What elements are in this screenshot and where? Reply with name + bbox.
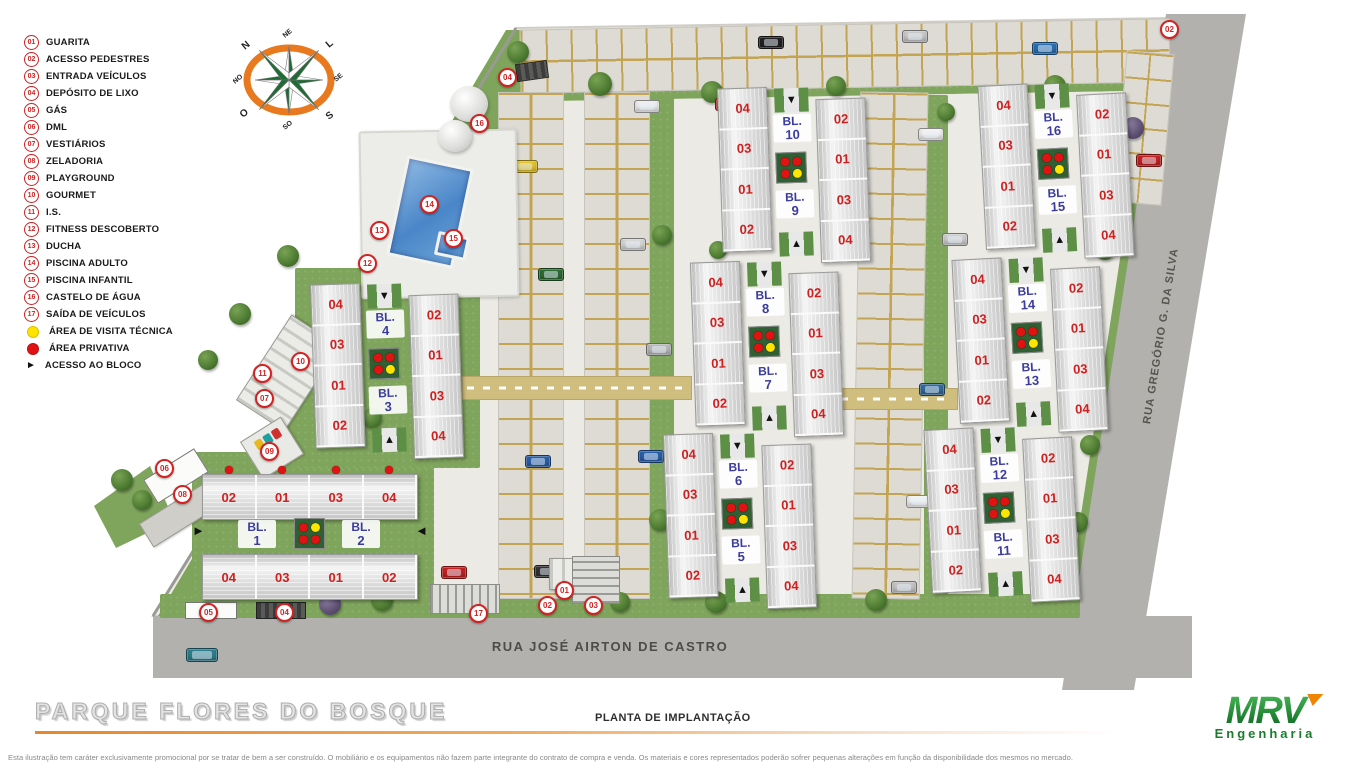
dot-yellow-icon: [739, 515, 748, 524]
legend-item: 13DUCHA: [24, 238, 173, 255]
map-marker: 16: [470, 114, 489, 133]
unit-number: 03: [927, 469, 977, 512]
dot-red-icon: [332, 466, 340, 474]
block-number: 14: [1009, 297, 1048, 313]
project-title: PARQUE FLORES DO BOSQUE: [35, 698, 447, 725]
compass-l: L: [324, 38, 336, 50]
unit-number: 04: [952, 258, 1002, 301]
unit-number: 03: [981, 125, 1031, 168]
block-number: 15: [1039, 199, 1078, 215]
legend-label: ACESSO PEDESTRES: [46, 54, 150, 65]
dot-red-icon: [278, 466, 286, 474]
block-number: 9: [776, 203, 814, 218]
unit-number: 02: [409, 295, 458, 337]
unit-number: 02: [203, 475, 257, 519]
legend: 01GUARITA02ACESSO PEDESTRES03ENTRADA VEÍ…: [24, 34, 173, 374]
unit-number: 03: [792, 353, 841, 395]
block-number: 8: [746, 301, 784, 316]
unit-number: 03: [719, 128, 768, 170]
legend-item: 14PISCINA ADULTO: [24, 255, 173, 272]
dot-red-icon: [27, 343, 39, 355]
unit-number: 04: [311, 284, 360, 326]
mrv-logo: MRV Engenharia: [1190, 694, 1340, 741]
block-pair: 0403010202010304▼BL.10BL.9▲: [717, 83, 873, 266]
block-pair: 0403010202010304▼BL.4BL.3▲: [310, 279, 466, 462]
legend-item: ÁREA DE VISITA TÉCNICA: [24, 323, 173, 340]
dot-red-icon: [780, 157, 789, 166]
block-number: 13: [1013, 373, 1052, 389]
building: 04030102: [202, 554, 418, 600]
access-triangle-icon: ►: [192, 524, 205, 537]
legend-number-badge: 16: [24, 290, 39, 305]
legend-item: 11I.S.: [24, 204, 173, 221]
dot-red-icon: [299, 535, 308, 544]
dot-red-icon: [1000, 497, 1009, 506]
legend-item: 08ZELADORIA: [24, 153, 173, 170]
block-access: ▲: [779, 231, 814, 256]
block-number: 16: [1035, 123, 1074, 139]
unit-number: 02: [1023, 437, 1073, 480]
legend-label: DEPÓSITO DE LIXO: [46, 88, 139, 99]
block-number: 5: [722, 549, 760, 564]
access-triangle-icon: ▼: [759, 268, 770, 279]
dot-red-icon: [989, 509, 998, 518]
street-label-bottom: RUA JOSÉ AIRTON DE CASTRO: [390, 639, 830, 654]
unit-number: 03: [955, 299, 1005, 342]
block-number: 12: [981, 467, 1020, 483]
access-triangle-icon: ►: [26, 361, 36, 371]
block-label: BL.5: [722, 535, 761, 565]
legend-number-badge: 13: [24, 239, 39, 254]
dot-yellow-icon: [766, 343, 775, 352]
compass-so: SO: [282, 119, 295, 131]
area-dots: [748, 326, 780, 358]
legend-item: 05GÁS: [24, 102, 173, 119]
building: 04030102: [977, 83, 1036, 249]
legend-label: PISCINA ADULTO: [46, 258, 128, 269]
block-label: BL.3: [369, 385, 408, 415]
dot-red-icon: [299, 523, 308, 532]
access-triangle-icon: ▼: [379, 290, 390, 301]
dot-red-icon: [225, 466, 233, 474]
compass-s: S: [324, 109, 336, 122]
dot-yellow-icon: [1055, 165, 1064, 174]
block-number: 6: [719, 473, 757, 488]
block-label: BL.13: [1012, 359, 1051, 389]
building: 02010304: [761, 443, 817, 609]
access-triangle-icon: ▼: [786, 94, 797, 105]
dot-yellow-icon: [27, 326, 39, 338]
legend-item: 07VESTIÁRIOS: [24, 136, 173, 153]
unit-number: 02: [789, 273, 838, 315]
legend-label: GOURMET: [46, 190, 96, 201]
legend-label: PLAYGROUND: [46, 173, 115, 184]
unit-number: 01: [257, 475, 311, 519]
dot-red-icon: [1042, 153, 1051, 162]
unit-number: 01: [310, 555, 364, 599]
legend-number-badge: 08: [24, 154, 39, 169]
area-dots: [1037, 147, 1070, 180]
legend-item: 06DML: [24, 119, 173, 136]
unit-number: 01: [818, 139, 867, 181]
legend-label: FITNESS DESCOBERTO: [46, 224, 159, 235]
access-triangle-icon: ◄: [415, 524, 428, 537]
unit-number: 02: [668, 555, 717, 597]
unit-number: 04: [978, 84, 1028, 127]
legend-label: CASTELO DE ÁGUA: [46, 292, 141, 303]
block-access: ▼: [1034, 83, 1069, 109]
dot-red-icon: [1043, 165, 1052, 174]
legend-item: 16CASTELO DE ÁGUA: [24, 289, 173, 306]
unit-number: 02: [315, 405, 364, 447]
block-label: BL.2: [342, 520, 380, 548]
unit-number: 04: [767, 566, 816, 608]
legend-number-badge: 15: [24, 273, 39, 288]
access-triangle-icon: ▲: [1000, 578, 1011, 590]
unit-number: 01: [667, 515, 716, 557]
compass-n: N: [240, 39, 253, 52]
access-triangle-icon: ▲: [1028, 408, 1039, 420]
legend-item: 03ENTRADA VEÍCULOS: [24, 68, 173, 85]
implantation-plan: 0403010202010304▼BL.4BL.3▲04030102020103…: [0, 0, 1369, 690]
map-marker: 07: [255, 389, 274, 408]
legend-number-badge: 04: [24, 86, 39, 101]
unit-number: 01: [1025, 478, 1075, 521]
area-dots: [775, 152, 807, 184]
unit-number: 02: [364, 555, 418, 599]
legend-number-badge: 06: [24, 120, 39, 135]
area-dots: [368, 348, 400, 380]
area-dots: [294, 518, 325, 549]
site-plan-page: 0403010202010304▼BL.4BL.3▲04030102020103…: [0, 0, 1369, 768]
map-marker: 09: [260, 442, 279, 461]
block-label: BL.4: [366, 309, 405, 339]
block-label: BL.12: [980, 453, 1019, 483]
disclaimer-text: Esta ilustração tem caráter exclusivamen…: [8, 753, 1363, 762]
building: 02010304: [1022, 436, 1081, 602]
unit-number: 03: [312, 324, 361, 366]
unit-number: 01: [694, 343, 743, 385]
unit-number: 01: [314, 365, 363, 407]
block-access: ▼: [747, 261, 782, 286]
legend-number-badge: 01: [24, 35, 39, 50]
map-marker: 14: [420, 195, 439, 214]
access-triangle-icon: ▲: [1054, 234, 1065, 246]
unit-number: 03: [257, 555, 311, 599]
legend-number-badge: 17: [24, 307, 39, 322]
map-marker: 08: [173, 485, 192, 504]
map-marker: 10: [291, 352, 310, 371]
block-number: 7: [749, 377, 787, 392]
unit-number: 04: [718, 88, 767, 130]
building: 04030102: [690, 261, 746, 427]
block-label: BL.6: [719, 459, 758, 489]
unit-number: 03: [819, 179, 868, 221]
map-marker: 02: [1160, 20, 1179, 39]
dot-red-icon: [1054, 153, 1063, 162]
unit-number: 04: [1029, 559, 1079, 602]
dot-red-icon: [754, 343, 763, 352]
unit-number: 02: [985, 206, 1035, 249]
block-label: BL.9: [776, 189, 815, 219]
map-marker: 17: [469, 604, 488, 623]
access-triangle-icon: ▼: [1020, 264, 1031, 276]
block-label: BL.8: [746, 287, 785, 317]
block-pair: 0403010202010304▼BL.14BL.13▲: [951, 252, 1110, 438]
legend-number-badge: 05: [24, 103, 39, 118]
unit-number: 02: [959, 380, 1009, 423]
legend-label: ÁREA PRIVATIVA: [49, 343, 130, 354]
dot-red-icon: [1017, 339, 1026, 348]
compass-se: SE: [333, 72, 345, 84]
legend-item: ►ACESSO AO BLOCO: [24, 357, 173, 374]
unit-number: 02: [931, 550, 981, 593]
dot-red-icon: [726, 503, 735, 512]
unit-number: 02: [722, 209, 771, 251]
access-triangle-icon: ▲: [737, 584, 748, 595]
unit-number: 01: [1053, 308, 1103, 351]
legend-number-badge: 12: [24, 222, 39, 237]
block-label-prefix: BL.: [342, 521, 380, 534]
compass-rose-icon: N NE L SE S SO O NO: [233, 26, 345, 138]
block-label: BL.16: [1034, 109, 1073, 139]
dot-red-icon: [765, 331, 774, 340]
map-marker: 13: [370, 221, 389, 240]
block-number: 11: [985, 543, 1024, 559]
unit-number: 04: [414, 416, 463, 458]
title-underline: [35, 731, 1120, 734]
block-access: ▲: [372, 427, 407, 452]
block-access: ▲: [752, 405, 787, 430]
legend-number-badge: 10: [24, 188, 39, 203]
unit-number: 02: [1051, 267, 1101, 310]
block-access: ▼: [720, 433, 755, 458]
building: 02010304: [788, 271, 844, 437]
legend-item: 01GUARITA: [24, 34, 173, 51]
map-marker: 05: [199, 603, 218, 622]
dot-yellow-icon: [311, 523, 320, 532]
unit-number: 02: [695, 383, 744, 425]
dot-red-icon: [753, 331, 762, 340]
access-triangle-icon: ▲: [764, 412, 775, 423]
legend-item: 17SAÍDA DE VEÍCULOS: [24, 306, 173, 323]
plan-subtitle: PLANTA DE IMPLANTAÇÃO: [595, 712, 751, 724]
block-pair: 0403010202010304▼BL.6BL.5▲: [663, 429, 819, 612]
legend-number-badge: 02: [24, 52, 39, 67]
map-marker: 01: [555, 581, 574, 600]
dot-red-icon: [781, 169, 790, 178]
unit-number: 03: [1055, 348, 1105, 391]
dot-red-icon: [792, 157, 801, 166]
building: 04030102: [717, 87, 773, 253]
map-marker: 02: [538, 596, 557, 615]
block-access: ▼: [980, 427, 1015, 453]
legend-item: 15PISCINA INFANTIL: [24, 272, 173, 289]
unit-number: 04: [203, 555, 257, 599]
unit-number: 03: [412, 375, 461, 417]
unit-number: 04: [664, 434, 713, 476]
unit-number: 04: [821, 220, 870, 262]
block-number: 4: [366, 323, 404, 338]
building: 02010304: [1050, 266, 1109, 432]
building: 02010304: [202, 474, 418, 520]
unit-number: 01: [929, 509, 979, 552]
legend-label: DUCHA: [46, 241, 81, 252]
map-marker: 06: [155, 459, 174, 478]
access-triangle-icon: ▲: [791, 238, 802, 249]
building: 02010304: [1076, 92, 1135, 258]
map-marker: 12: [358, 254, 377, 273]
access-triangle-icon: ▲: [384, 434, 395, 445]
dot-yellow-icon: [1029, 339, 1038, 348]
map-marker: 04: [498, 68, 517, 87]
unit-number: 03: [1027, 518, 1077, 561]
legend-number-badge: 03: [24, 69, 39, 84]
compass-o: O: [238, 107, 251, 121]
building: 04030102: [923, 427, 982, 593]
building: 04030102: [663, 433, 719, 599]
block-number: 10: [773, 127, 811, 142]
block-access: ▲: [988, 571, 1023, 597]
legend-label: ACESSO AO BLOCO: [45, 360, 142, 371]
block-access: ▲: [725, 577, 760, 602]
unit-number: 04: [691, 262, 740, 304]
legend-item: 10GOURMET: [24, 187, 173, 204]
block-pair: 0403010202010304▼BL.12BL.11▲: [923, 422, 1082, 608]
access-triangle-icon: ▼: [732, 440, 743, 451]
block-label: BL.15: [1038, 185, 1077, 215]
dot-red-icon: [385, 353, 394, 362]
dot-yellow-icon: [386, 365, 395, 374]
building: 02010304: [815, 97, 871, 263]
unit-number: 02: [762, 445, 811, 487]
unit-number: 03: [1081, 174, 1131, 217]
building: 04030102: [951, 257, 1010, 423]
unit-number: 01: [721, 169, 770, 211]
block-access: ▲: [1042, 227, 1077, 253]
block-access: ▼: [1008, 257, 1043, 283]
access-triangle-icon: ▼: [992, 434, 1003, 446]
legend-number-badge: 09: [24, 171, 39, 186]
block-pair: 0403010202010304▼BL.16BL.15▲: [977, 78, 1136, 264]
block-pair: 0201030404030102►◄BL.1BL.2: [200, 466, 420, 602]
legend-label: I.S.: [46, 207, 61, 218]
unit-number: 02: [1077, 93, 1127, 136]
unit-number: 01: [983, 165, 1033, 208]
legend-number-badge: 14: [24, 256, 39, 271]
dot-red-icon: [738, 503, 747, 512]
block-label: BL.14: [1008, 283, 1047, 313]
legend-label: DML: [46, 122, 67, 133]
building: 04030102: [310, 283, 366, 449]
dot-red-icon: [311, 535, 320, 544]
dot-red-icon: [988, 497, 997, 506]
map-marker: 03: [584, 596, 603, 615]
unit-number: 03: [665, 474, 714, 516]
unit-number: 01: [1079, 134, 1129, 177]
block-number: 2: [342, 534, 380, 548]
block-access: ▼: [367, 283, 402, 308]
unit-number: 04: [364, 475, 418, 519]
block-number: 1: [238, 534, 276, 548]
area-dots: [983, 491, 1016, 524]
building: 02010304: [408, 293, 464, 459]
unit-number: 01: [791, 313, 840, 355]
dot-red-icon: [374, 365, 383, 374]
mrv-logo-tagline: Engenharia: [1190, 726, 1340, 741]
legend-label: ÁREA DE VISITA TÉCNICA: [49, 326, 173, 337]
block-label: BL.7: [749, 363, 788, 393]
legend-label: VESTIÁRIOS: [46, 139, 106, 150]
legend-item: 12FITNESS DESCOBERTO: [24, 221, 173, 238]
dot-yellow-icon: [793, 169, 802, 178]
area-dots: [1011, 321, 1044, 354]
unit-number: 01: [764, 485, 813, 527]
legend-number-badge: 11: [24, 205, 39, 220]
map-marker: 15: [444, 229, 463, 248]
access-triangle-icon: ▼: [1046, 90, 1057, 102]
unit-number: 03: [765, 525, 814, 567]
dot-red-icon: [385, 466, 393, 474]
map-marker: 11: [253, 364, 272, 383]
private-area-dots: [202, 466, 416, 474]
dot-red-icon: [1028, 327, 1037, 336]
unit-number: 01: [957, 339, 1007, 382]
legend-label: GÁS: [46, 105, 67, 116]
area-dots: [721, 498, 753, 530]
block-pair: 0403010202010304▼BL.8BL.7▲: [690, 257, 846, 440]
unit-number: 04: [1083, 215, 1133, 258]
compass-ne: NE: [282, 28, 294, 40]
legend-label: SAÍDA DE VEÍCULOS: [46, 309, 146, 320]
block-access: ▼: [774, 87, 809, 112]
block-label: BL.11: [984, 529, 1023, 559]
unit-number: 03: [692, 302, 741, 344]
dot-red-icon: [1016, 327, 1025, 336]
block-number: 3: [369, 399, 407, 414]
legend-number-badge: 07: [24, 137, 39, 152]
legend-label: ZELADORIA: [46, 156, 103, 167]
legend-item: ÁREA PRIVATIVA: [24, 340, 173, 357]
block-label: BL.10: [773, 113, 812, 143]
dot-red-icon: [727, 515, 736, 524]
compass-no: NO: [233, 73, 245, 85]
legend-label: PISCINA INFANTIL: [46, 275, 133, 286]
legend-item: 02ACESSO PEDESTRES: [24, 51, 173, 68]
block-label-prefix: BL.: [238, 521, 276, 534]
unit-number: 01: [411, 335, 460, 377]
map-marker: 04: [275, 603, 294, 622]
unit-number: 04: [924, 428, 974, 471]
legend-label: ENTRADA VEÍCULOS: [46, 71, 147, 82]
unit-number: 03: [310, 475, 364, 519]
legend-item: 04DEPÓSITO DE LIXO: [24, 85, 173, 102]
unit-number: 02: [816, 99, 865, 141]
mrv-logo-accent-icon: [1305, 694, 1324, 706]
legend-label: GUARITA: [46, 37, 90, 48]
legend-item: 09PLAYGROUND: [24, 170, 173, 187]
dot-red-icon: [373, 353, 382, 362]
block-label: BL.1: [238, 520, 276, 548]
dot-yellow-icon: [1001, 509, 1010, 518]
